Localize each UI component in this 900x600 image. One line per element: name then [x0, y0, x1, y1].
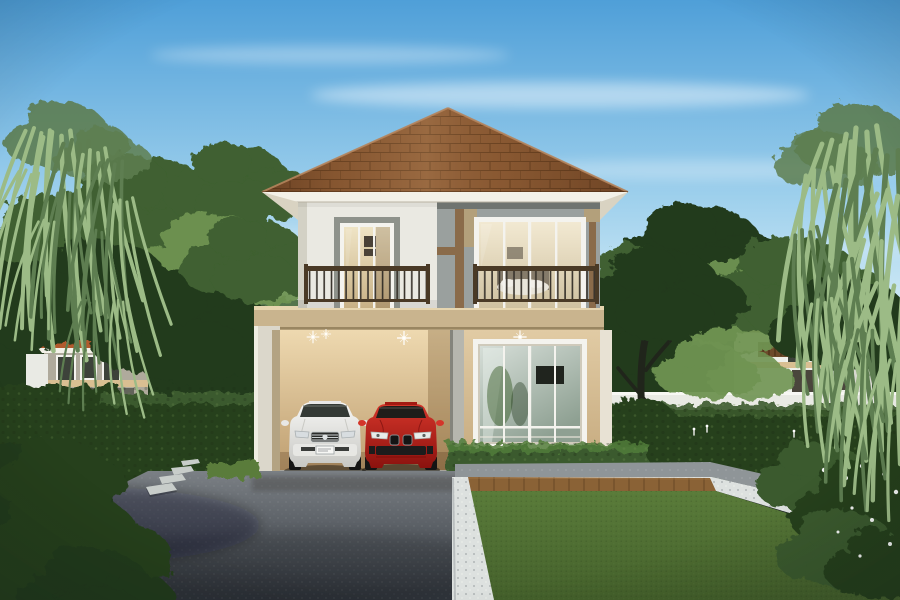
rendering-stage: Architectural rendering of a modern two-… — [0, 0, 900, 600]
vignette — [0, 0, 900, 600]
house-rendering: Architectural rendering of a modern two-… — [0, 0, 900, 600]
